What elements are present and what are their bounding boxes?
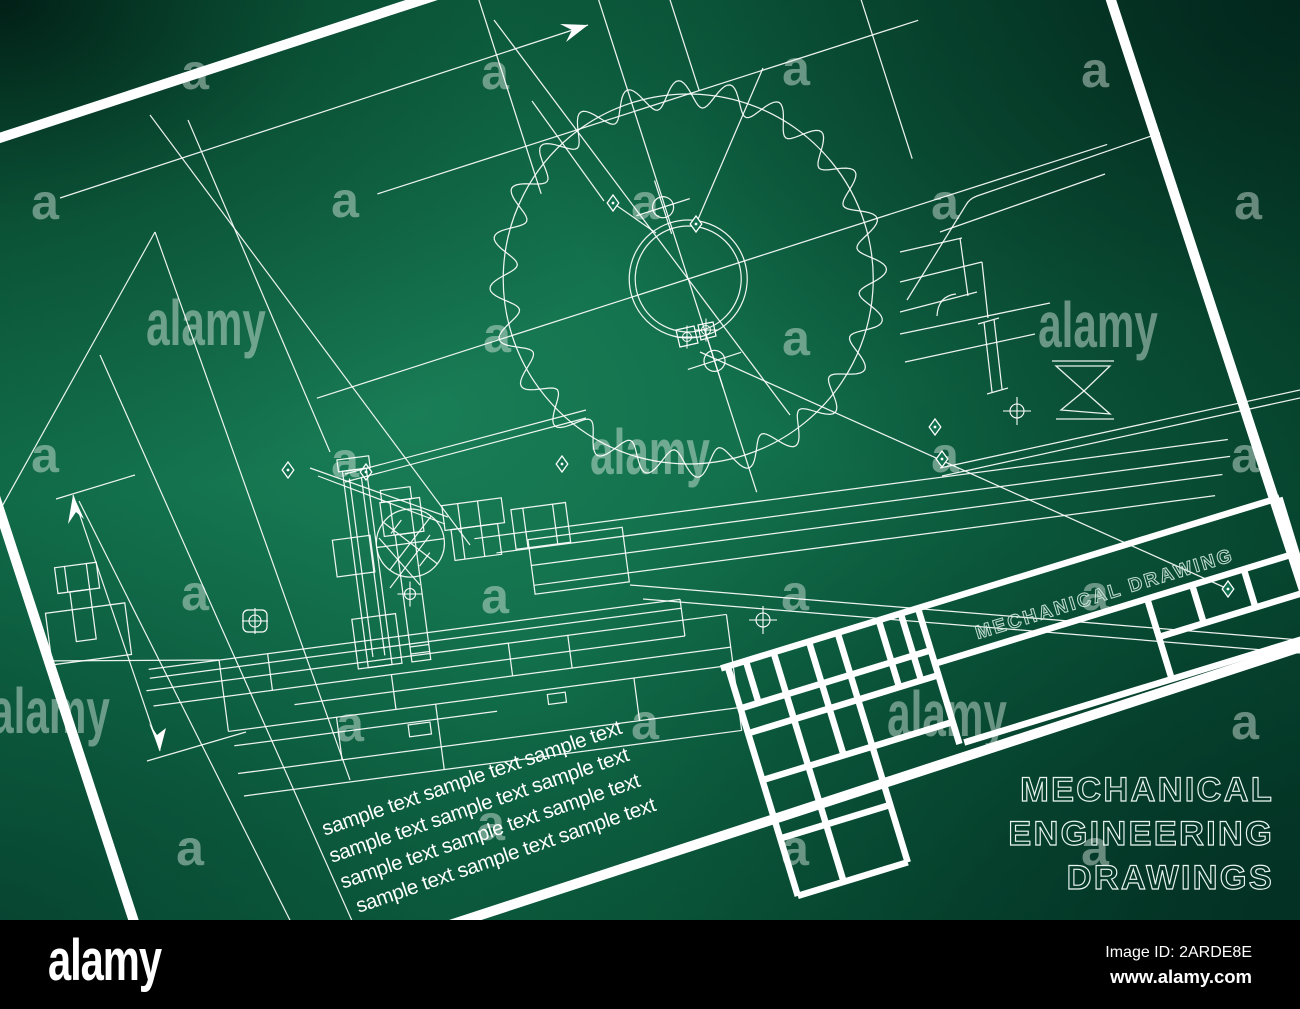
svg-text:a: a: [31, 174, 60, 230]
svg-text:a: a: [31, 427, 60, 483]
svg-text:Image ID: 2ARDE8E: Image ID: 2ARDE8E: [1105, 944, 1252, 961]
svg-text:a: a: [1231, 694, 1260, 750]
svg-text:alamy: alamy: [48, 927, 162, 992]
svg-text:DRAWINGS: DRAWINGS: [1067, 859, 1274, 897]
svg-text:a: a: [782, 310, 811, 366]
svg-text:ENGINEERING: ENGINEERING: [1008, 815, 1274, 853]
svg-text:MECHANICAL: MECHANICAL: [1020, 771, 1274, 809]
svg-text:a: a: [1081, 42, 1110, 98]
svg-text:alamy: alamy: [1038, 290, 1158, 361]
svg-text:www.alamy.com: www.alamy.com: [1109, 966, 1252, 987]
svg-text:alamy: alamy: [146, 288, 266, 359]
svg-text:a: a: [1234, 174, 1263, 230]
svg-text:a: a: [782, 40, 811, 96]
svg-text:a: a: [483, 307, 512, 363]
svg-text:a: a: [331, 172, 360, 228]
svg-text:a: a: [176, 820, 205, 876]
svg-text:a: a: [481, 568, 510, 624]
